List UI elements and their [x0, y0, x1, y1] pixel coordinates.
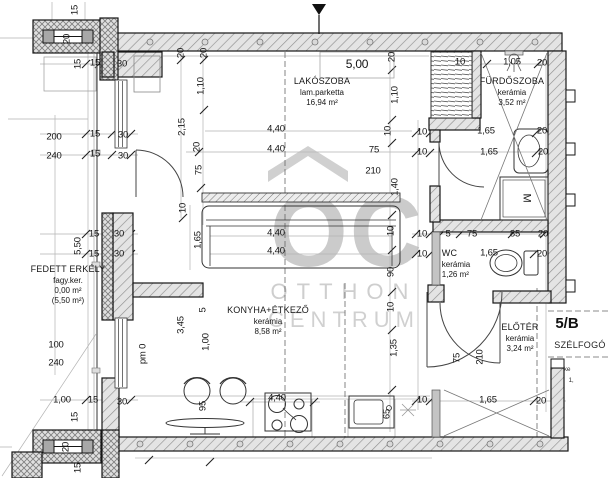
furniture [166, 129, 548, 434]
star-mark [400, 404, 416, 416]
sink [349, 396, 394, 428]
chair [220, 378, 246, 404]
dimension-guide-lines [0, 2, 610, 476]
glass-partitions [432, 232, 440, 437]
interior-walls [113, 51, 551, 320]
section-marker-icon [312, 4, 326, 34]
doors [136, 142, 502, 367]
washing-machine [500, 177, 548, 220]
chair [184, 378, 210, 404]
shower-head-icon [505, 51, 523, 72]
dimension-ticks [82, 56, 565, 466]
floor-plan-page: OC OTTHON CENTRUM [0, 0, 612, 478]
dining-table [166, 419, 244, 428]
sofa [202, 206, 400, 268]
pillar-slots [43, 30, 93, 453]
closet [431, 52, 472, 118]
floor-plan-drawing [0, 0, 612, 478]
balcony-edge [92, 53, 100, 430]
shelf [202, 193, 400, 202]
wall-dots [137, 39, 543, 447]
